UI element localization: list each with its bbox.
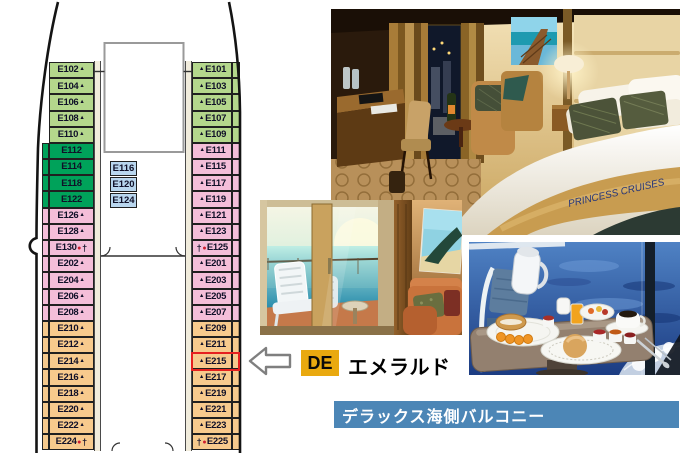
cabin-cell-E208: E208▲ <box>49 305 94 321</box>
balcony-strip <box>232 208 240 224</box>
cabin-cell-E106: E106▲ <box>49 94 94 110</box>
balcony-strip <box>42 402 49 418</box>
balcony-triangle-marker: ▲ <box>199 294 204 300</box>
stairs-block <box>105 43 184 152</box>
balcony-strip <box>42 321 49 337</box>
balcony-triangle-marker: ▲ <box>79 84 84 90</box>
cabin-number: E107 <box>205 114 226 124</box>
balcony-strip <box>42 159 49 175</box>
balcony-triangle-marker: ▲ <box>199 116 204 122</box>
cabin-cell-E206: E206▲ <box>49 289 94 305</box>
cabin-cell-E223: ▲E223 <box>192 418 232 434</box>
balcony-strip <box>42 224 49 240</box>
balcony-strip <box>42 256 49 272</box>
balcony-strip <box>232 402 240 418</box>
cabin-number: E223 <box>205 421 226 431</box>
cabin-number: E214 <box>57 357 78 367</box>
balcony-triangle-marker: ▲ <box>199 213 204 219</box>
cabin-number: E118 <box>61 179 81 189</box>
balcony-strip <box>232 159 240 175</box>
deck-plan: E102▲E104▲E106▲E108▲E110▲E112E114E118E12… <box>0 0 246 453</box>
cabin-cell-E130: E130●† <box>49 240 94 256</box>
balcony-triangle-marker: ▲ <box>79 100 84 106</box>
fruit-bowl <box>580 304 614 320</box>
balcony-strip <box>232 272 240 288</box>
cabin-cell-E118: E118 <box>49 175 94 191</box>
balcony-strip <box>42 369 49 385</box>
cabin-number: E216 <box>57 373 78 383</box>
balcony-strip <box>232 224 240 240</box>
cabin-number: E220 <box>57 405 78 415</box>
door-arc-left <box>101 247 110 256</box>
cabin-number: E202 <box>57 259 78 269</box>
balcony-strip <box>42 191 49 207</box>
balcony-triangle-marker: ▲ <box>199 148 204 154</box>
balcony-strip <box>42 418 49 434</box>
cabin-cell-E201: ▲E201 <box>192 256 232 272</box>
cabin-cell-E114: E114 <box>49 159 94 175</box>
balcony-strip <box>232 337 240 353</box>
cabin-number: E103 <box>205 82 226 92</box>
cabin-number: E110 <box>58 130 78 140</box>
balcony-strip <box>232 127 240 143</box>
balcony-strip <box>232 94 240 110</box>
cabin-number: E130 <box>56 243 77 253</box>
balcony-triangle-marker: ▲ <box>79 407 84 413</box>
cabin-number: E119 <box>205 195 225 205</box>
balcony-strip <box>232 305 240 321</box>
breakfast-balcony-photo <box>469 242 680 375</box>
cabin-cell-E124: E124 <box>110 193 137 208</box>
cabin-cell-E204: E204▲ <box>49 272 94 288</box>
cabin-cell-E216: E216▲ <box>49 369 94 385</box>
balcony-triangle-marker: ▲ <box>199 181 204 187</box>
cabin-number: E125 <box>207 243 228 253</box>
cabin-cell-E103: ▲E103 <box>192 78 232 94</box>
cabin-number: E104 <box>57 82 78 92</box>
cabin-number: E112 <box>61 146 81 156</box>
cabin-cell-E101: ▲E101 <box>192 62 232 78</box>
cabin-cell-E122: E122 <box>49 191 94 207</box>
balcony-triangle-marker: ▲ <box>199 278 204 284</box>
cabin-number: E128 <box>57 227 78 237</box>
balcony-triangle-marker: ▲ <box>199 310 204 316</box>
balcony-triangle-marker: ▲ <box>199 132 204 138</box>
cabin-cell-E125: †●E125 <box>192 240 232 256</box>
cabin-number: E201 <box>205 259 226 269</box>
cabin-cell-E115: ▲E115 <box>192 159 232 175</box>
balcony-strip <box>42 353 49 369</box>
balcony-strip <box>232 111 240 127</box>
cabin-grade-badge: DE <box>301 350 339 376</box>
cabin-number: E224 <box>56 437 77 447</box>
balcony-triangle-marker: ▲ <box>199 342 204 348</box>
cabin-cell-E217: ▲E217 <box>192 369 232 385</box>
cabin-cell-E207: ▲E207 <box>192 305 232 321</box>
balcony-strip <box>232 78 240 94</box>
cabin-grade-name: エメラルド <box>348 351 451 380</box>
cabin-number: E122 <box>61 195 82 205</box>
cabin-number: E109 <box>205 130 226 140</box>
balcony-triangle-marker: ▲ <box>199 197 204 203</box>
cabin-cell-E108: E108▲ <box>49 111 94 127</box>
balcony-triangle-marker: ▲ <box>79 342 84 348</box>
balcony-triangle-marker: ▲ <box>79 261 84 267</box>
red-dot-marker: ● <box>202 439 206 446</box>
balcony-triangle-marker: ▲ <box>79 229 84 235</box>
balcony-strip <box>232 256 240 272</box>
red-dot-marker: ● <box>202 245 206 252</box>
cabin-cell-E202: E202▲ <box>49 256 94 272</box>
balcony-strip <box>42 386 49 402</box>
cabin-cell-E221: ▲E221 <box>192 402 232 418</box>
cabin-number: E211 <box>205 340 225 350</box>
balcony-strip <box>42 175 49 191</box>
balcony-triangle-marker: ▲ <box>199 407 204 413</box>
balcony-triangle-marker: ▲ <box>79 310 84 316</box>
balcony-triangle-marker: ▲ <box>79 391 84 397</box>
balcony-strip <box>42 208 49 224</box>
balcony-strip <box>232 321 240 337</box>
cabin-number: E210 <box>57 324 78 334</box>
balcony-strip <box>232 434 240 450</box>
cabin-cell-E209: ▲E209 <box>192 321 232 337</box>
cabin-number: E225 <box>207 437 228 447</box>
balcony-triangle-marker: ▲ <box>79 294 84 300</box>
balcony-triangle-marker: ▲ <box>199 391 204 397</box>
milk-jug <box>557 298 570 314</box>
dagger-marker: † <box>82 244 87 253</box>
balcony-strip <box>42 289 49 305</box>
category-banner: デラックス海側バルコニー <box>334 401 679 428</box>
cabin-cell-E126: E126▲ <box>49 208 94 224</box>
cabin-number: E208 <box>57 308 78 318</box>
cabin-cell-E110: E110▲ <box>49 127 94 143</box>
balcony-strip <box>42 305 49 321</box>
cabin-number: E212 <box>57 340 78 350</box>
balcony-strip <box>42 240 49 256</box>
cabin-cell-E212: E212▲ <box>49 337 94 353</box>
balcony-triangle-marker: ▲ <box>79 326 84 332</box>
cabin-number: E218 <box>57 389 78 399</box>
balcony-triangle-marker: ▲ <box>79 132 84 138</box>
cabin-cell-E120: E120 <box>110 177 137 192</box>
cabin-number: E117 <box>205 179 225 189</box>
cabin-cell-E203: ▲E203 <box>192 272 232 288</box>
cabin-cell-E222: E222▲ <box>49 418 94 434</box>
cabin-cell-E121: ▲E121 <box>192 208 232 224</box>
balcony-triangle-marker: ▲ <box>199 375 204 381</box>
cabin-cell-E220: E220▲ <box>49 402 94 418</box>
balcony-triangle-marker: ▲ <box>79 278 84 284</box>
left-arrow-icon <box>246 344 294 378</box>
balcony-triangle-marker: ▲ <box>199 67 204 73</box>
balcony-triangle-marker: ▲ <box>199 326 204 332</box>
balcony-strip <box>232 369 240 385</box>
highlight-box-E215 <box>191 352 240 371</box>
corridor-strip-left <box>94 61 101 451</box>
cabin-cell-E107: ▲E107 <box>192 111 232 127</box>
cabin-cell-E123: ▲E123 <box>192 224 232 240</box>
dagger-marker: † <box>82 438 87 447</box>
dagger-marker: † <box>197 244 202 253</box>
cabin-cell-E210: E210▲ <box>49 321 94 337</box>
balcony-triangle-marker: ▲ <box>79 375 84 381</box>
cabin-number: E115 <box>205 162 225 172</box>
cabin-cell-E214: E214▲ <box>49 353 94 369</box>
balcony-triangle-marker: ▲ <box>199 423 204 429</box>
cruise-cabin-page: E102▲E104▲E106▲E108▲E110▲E112E114E118E12… <box>0 0 680 453</box>
red-dot-marker: ● <box>77 245 81 252</box>
wastebasket <box>389 171 405 193</box>
cabin-cell-E225: †●E225 <box>192 434 232 450</box>
sofa <box>403 278 462 335</box>
wall-art-beach <box>420 209 462 274</box>
balcony-triangle-marker: ▲ <box>199 229 204 235</box>
cabin-number: E205 <box>205 292 226 302</box>
cabin-cell-E211: ▲E211 <box>192 337 232 353</box>
cabin-cell-E117: ▲E117 <box>192 175 232 191</box>
cabin-number: E219 <box>205 389 226 399</box>
cabin-number: E108 <box>57 114 78 124</box>
corridor-strip-right <box>185 61 192 451</box>
cabin-cell-E205: ▲E205 <box>192 289 232 305</box>
balcony-strip <box>232 175 240 191</box>
cabin-cell-E104: E104▲ <box>49 78 94 94</box>
cabin-cell-E111: ▲E111 <box>192 143 232 159</box>
cabin-number: E204 <box>57 276 78 286</box>
red-dot-marker: ● <box>77 439 81 446</box>
cabin-cell-E219: ▲E219 <box>192 386 232 402</box>
cabin-number: E106 <box>57 98 78 108</box>
balcony-strip <box>42 337 49 353</box>
water-bottle <box>343 67 350 89</box>
balcony-triangle-marker: ▲ <box>79 116 84 122</box>
balcony-strip <box>232 143 240 159</box>
balcony-triangle-marker: ▲ <box>199 84 204 90</box>
water-bottle <box>352 69 359 89</box>
cabin-cell-E109: ▲E109 <box>192 127 232 143</box>
cabin-cell-E128: E128▲ <box>49 224 94 240</box>
balcony-strip <box>42 143 49 159</box>
balcony-triangle-marker: ▲ <box>199 100 204 106</box>
balcony-photo <box>260 200 462 335</box>
cabin-number: E209 <box>205 324 226 334</box>
cabin-cell-E102: E102▲ <box>49 62 94 78</box>
balcony-triangle-marker: ▲ <box>79 359 84 365</box>
sofa <box>501 71 543 131</box>
cabin-cell-E112: E112 <box>49 143 94 159</box>
door-arc-right <box>176 247 185 256</box>
cabin-number: E217 <box>205 373 226 383</box>
balcony-strip <box>232 240 240 256</box>
cabin-number: E123 <box>205 227 226 237</box>
cabin-number: E101 <box>205 65 226 75</box>
door-arc-bottom-right <box>165 443 173 451</box>
balcony-triangle-marker: ▲ <box>79 423 84 429</box>
dagger-marker: † <box>197 438 202 447</box>
cabin-number: E206 <box>57 292 78 302</box>
balcony-strip <box>232 386 240 402</box>
balcony-strip <box>232 418 240 434</box>
balcony-triangle-marker: ▲ <box>79 213 84 219</box>
cabin-cell-E116: E116 <box>110 161 137 176</box>
cabin-number: E114 <box>61 162 81 172</box>
cabin-cell-E218: E218▲ <box>49 386 94 402</box>
cabin-number: E126 <box>57 211 78 221</box>
cabin-number: E221 <box>205 405 226 415</box>
cabin-number: E207 <box>205 308 226 318</box>
balcony-strip <box>42 272 49 288</box>
cabin-number: E121 <box>205 211 226 221</box>
cabin-number: E222 <box>57 421 78 431</box>
cabin-number: E111 <box>206 146 226 156</box>
balcony-strip <box>42 434 49 450</box>
balcony-triangle-marker: ▲ <box>199 164 204 170</box>
cabin-cell-E105: ▲E105 <box>192 94 232 110</box>
balcony-strip <box>232 191 240 207</box>
door-arc-bottom-left <box>112 443 120 451</box>
balcony-triangle-marker: ▲ <box>199 261 204 267</box>
balcony-strip <box>232 62 240 78</box>
cabin-cell-E224: E224●† <box>49 434 94 450</box>
cabin-cell-E119: ▲E119 <box>192 191 232 207</box>
category-banner-text: デラックス海側バルコニー <box>334 403 545 427</box>
balcony-triangle-marker: ▲ <box>79 67 84 73</box>
cabin-number: E102 <box>57 65 78 75</box>
balcony-strip <box>232 289 240 305</box>
cabin-number: E105 <box>205 98 226 108</box>
cabin-number: E203 <box>205 276 226 286</box>
